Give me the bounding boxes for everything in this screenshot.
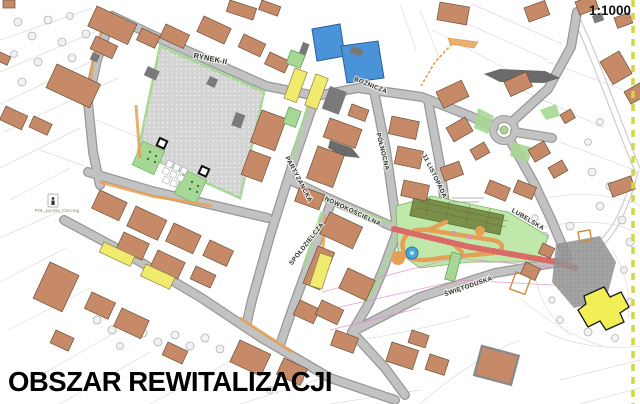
park-pad <box>391 251 405 265</box>
large-building-outlined <box>474 346 518 385</box>
scale-label: 1:1000 <box>589 3 631 18</box>
roundabout-island <box>500 126 508 134</box>
broken-image-caption: POL_Łęczna_COA.svg <box>35 208 80 213</box>
orange-marks <box>421 38 478 86</box>
ponds <box>312 24 384 83</box>
bypass-road <box>566 12 640 258</box>
revitalization-map-page: RYNEK II PARTYZANCKA BOŻNICZA PÓŁNOCNA 1… <box>0 0 640 404</box>
park-pad-2 <box>475 226 485 236</box>
coa-placeholder: POL_Łęczna_COA.svg <box>35 194 80 213</box>
page-title: OBSZAR REWITALIZACJI <box>8 366 332 397</box>
map-canvas: RYNEK II PARTYZANCKA BOŻNICZA PÓŁNOCNA 1… <box>0 0 640 404</box>
